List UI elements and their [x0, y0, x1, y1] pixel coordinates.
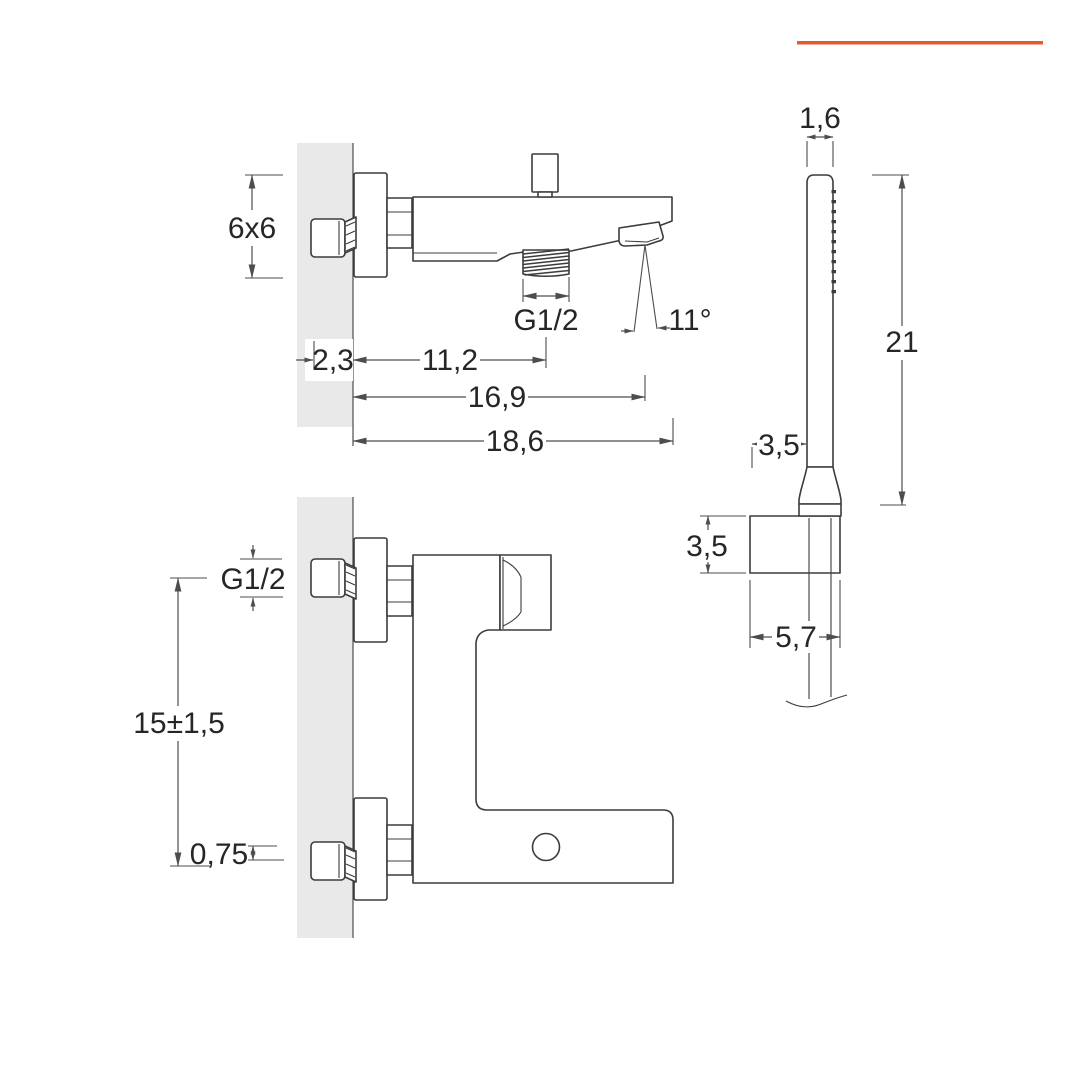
dim-label-elbow-depth: 2,3 — [312, 344, 354, 377]
wall-bracket — [750, 516, 840, 573]
dim-label-thread-side: G1/2 — [513, 304, 578, 337]
dim-label-length: 21 — [885, 326, 918, 359]
cone-ferrule — [799, 504, 841, 516]
hose-break-line — [786, 695, 847, 707]
technical-drawing-page: 6x6 2,3 11,2 16,9 18,6 G1/2 11° — [0, 0, 1080, 1080]
wall-flange-top — [354, 538, 387, 642]
hex-nut — [387, 198, 412, 248]
dim-label-axis-offset: 0,75 — [190, 838, 248, 871]
side-view: 6x6 2,3 11,2 16,9 18,6 G1/2 11° — [224, 143, 712, 458]
dim-label-spout-connection: 11,2 — [422, 344, 478, 377]
dim-label-flange-size: 6x6 — [228, 212, 276, 245]
front-view: G1/2 15±1,5 0,75 — [133, 497, 673, 938]
hand-shower-view: 1,6 21 3,5 3,5 5,7 — [685, 102, 921, 707]
supply-elbow-bottom — [311, 842, 356, 882]
supply-elbow-top — [311, 559, 356, 599]
dim-label-bracket-height: 3,5 — [686, 530, 728, 563]
dim-label-head-offset: 3,5 — [758, 429, 800, 462]
supply-elbow — [311, 217, 356, 257]
hex-nut-bottom — [387, 825, 412, 875]
mixer-handle — [500, 555, 551, 630]
dim-label-total-reach: 18,6 — [486, 425, 544, 458]
dim-label-head-width: 1,6 — [799, 102, 841, 135]
shower-wand — [807, 175, 833, 467]
dim-label-outlet-reach: 16,9 — [468, 381, 526, 414]
wall-flange — [354, 173, 387, 277]
wall-section — [297, 143, 353, 427]
handshower-outlet-hole — [533, 834, 560, 861]
wand-cone — [799, 467, 841, 504]
dim-label-bracket-width: 5,7 — [775, 621, 817, 654]
accent-line — [797, 41, 1043, 45]
dim-label-outlet-angle: 11° — [668, 304, 711, 337]
handshower-thread — [523, 249, 569, 276]
technical-drawing-canvas: 6x6 2,3 11,2 16,9 18,6 G1/2 11° — [0, 0, 1080, 1080]
hex-nut-top — [387, 566, 412, 616]
wall-flange-bottom — [354, 798, 387, 900]
dim-label-inlet-spacing: 15±1,5 — [133, 707, 225, 740]
dim-label-thread-front: G1/2 — [220, 563, 285, 596]
front-view-dimensions: G1/2 15±1,5 0,75 — [133, 545, 285, 871]
diverter-knob — [532, 154, 558, 197]
